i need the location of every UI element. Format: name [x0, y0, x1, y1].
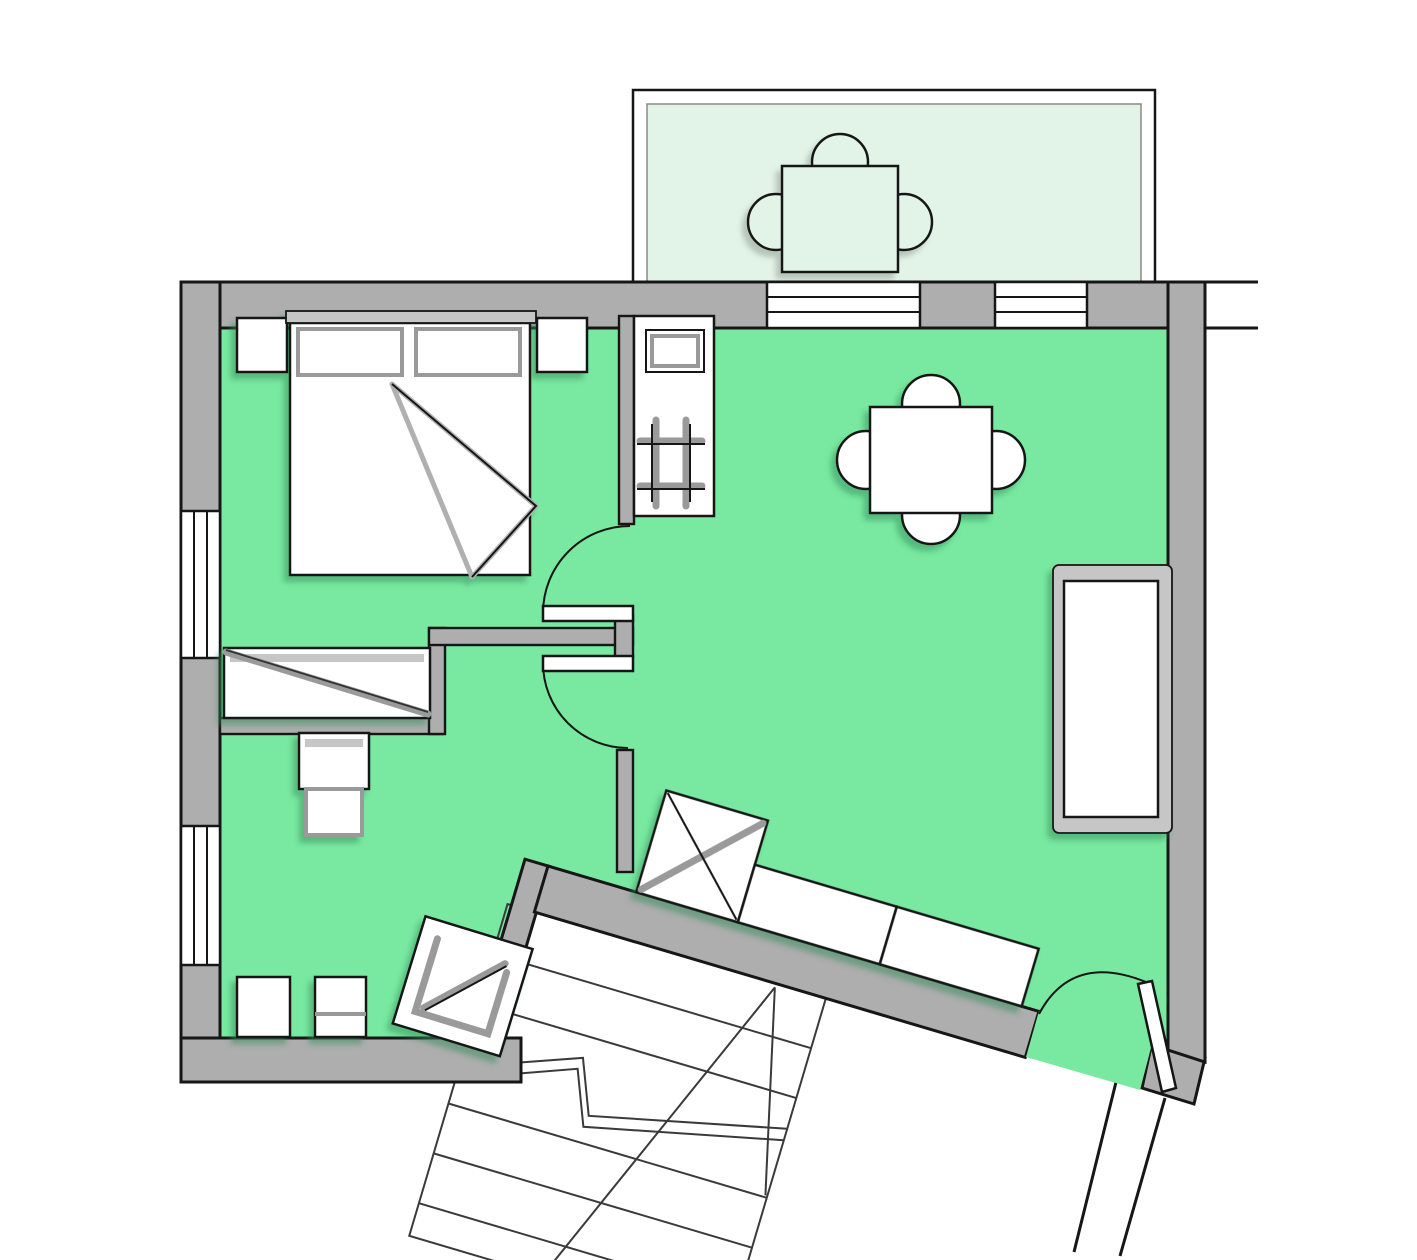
- door-leaf: [543, 656, 633, 671]
- balcony-table-icon: [782, 166, 898, 272]
- window-icon: [767, 282, 920, 328]
- door-leaf: [543, 606, 633, 621]
- kitchen-partition-wall: [619, 316, 634, 524]
- floor-plan-page: [0, 0, 1417, 1260]
- dining-table-icon: [870, 407, 992, 513]
- floor-plan-drawing: [0, 0, 1417, 1260]
- desk-edge: [305, 739, 363, 747]
- pillow-icon: [416, 329, 520, 375]
- stool-icon: [237, 977, 290, 1037]
- nightstand-icon: [537, 318, 587, 372]
- pillow-icon: [298, 329, 402, 375]
- stool-icon: [315, 977, 366, 1037]
- bed-headboard: [286, 311, 536, 323]
- hall-wall-stub: [617, 750, 633, 872]
- window-icon: [181, 826, 220, 965]
- wardrobe-icon: [224, 648, 430, 718]
- balcony: [633, 90, 1155, 282]
- kitchenette: [634, 316, 714, 516]
- window-icon: [995, 282, 1087, 328]
- chair-icon: [306, 789, 362, 835]
- partition-wall: [220, 718, 443, 734]
- nightstand-icon: [237, 318, 287, 372]
- partition-wall: [429, 628, 633, 645]
- right-wall: [1168, 282, 1205, 1062]
- window-icon: [181, 511, 220, 658]
- sofa-icon: [1053, 565, 1172, 833]
